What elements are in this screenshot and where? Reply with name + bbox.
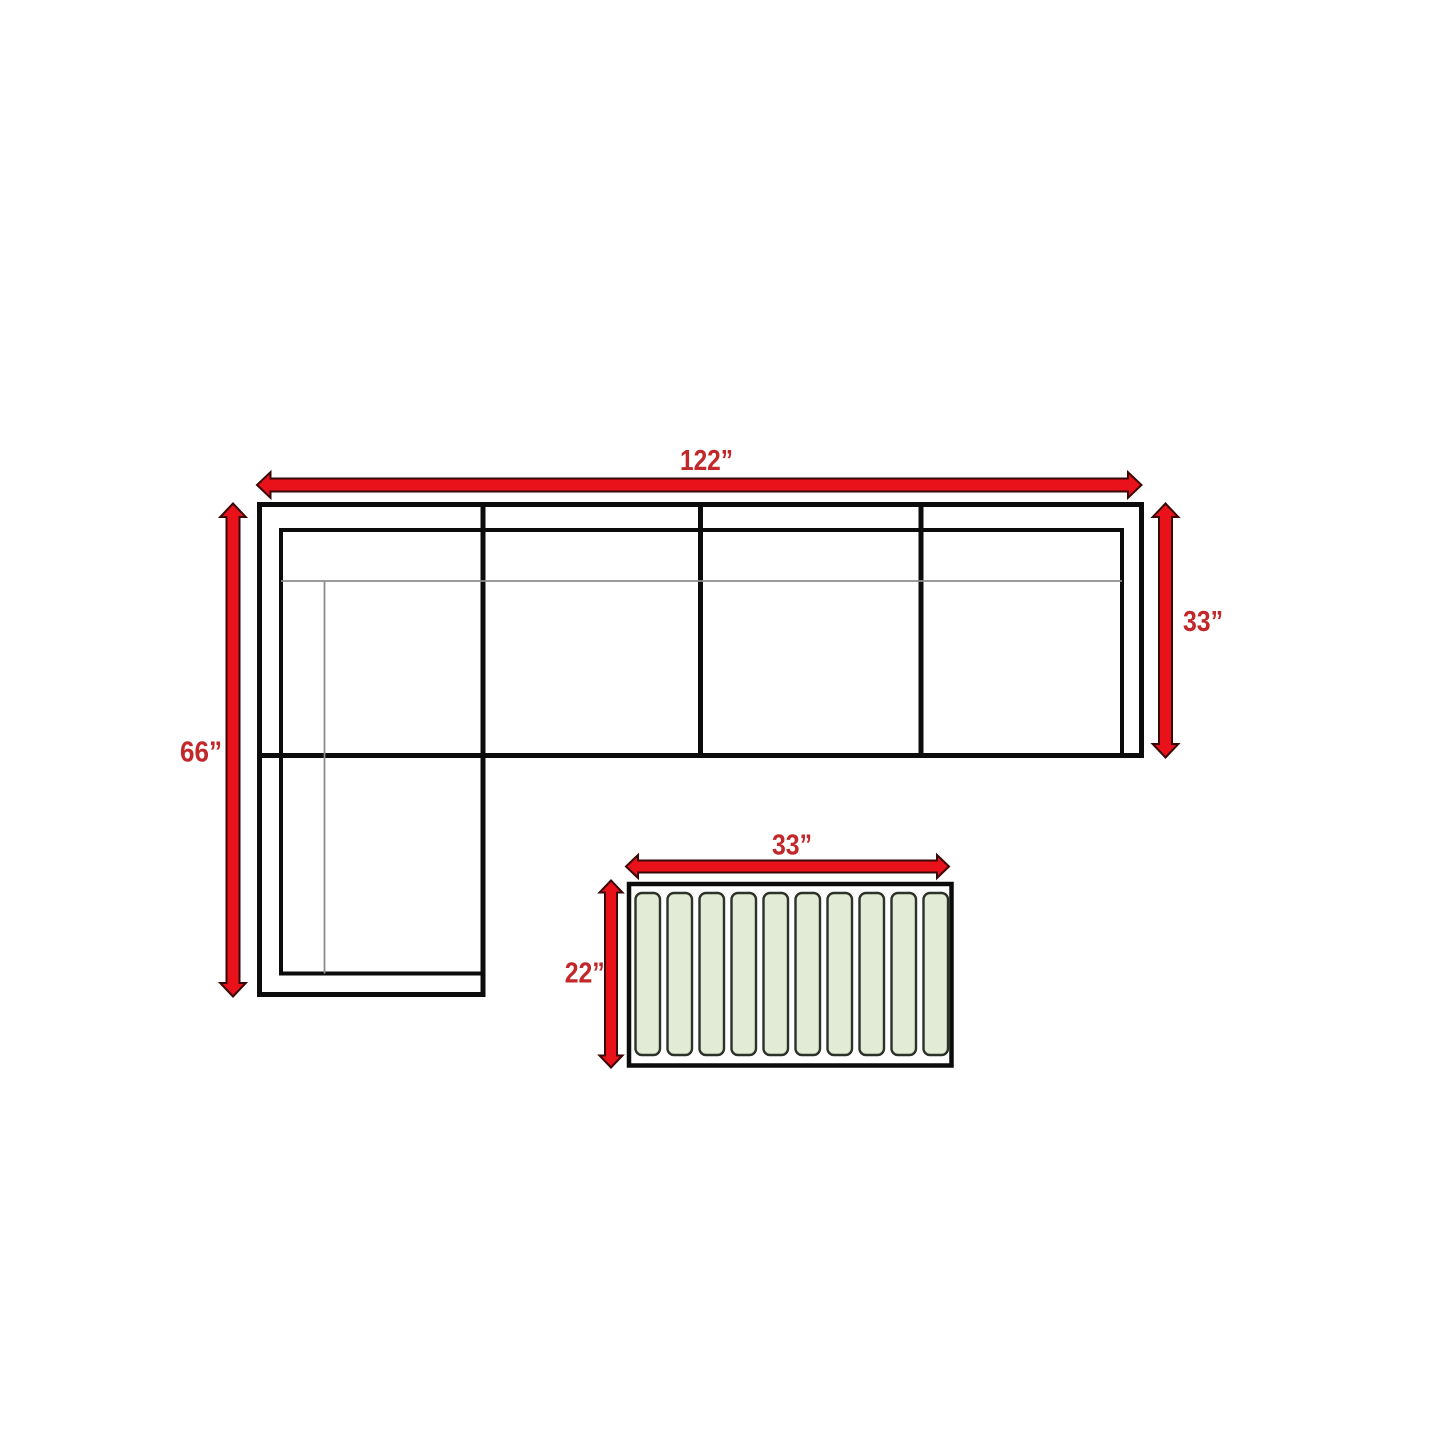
svg-text:22”: 22”: [565, 958, 605, 990]
svg-text:33”: 33”: [1183, 606, 1223, 638]
svg-text:66”: 66”: [180, 737, 222, 769]
svg-text:33”: 33”: [772, 830, 812, 862]
svg-text:122”: 122”: [680, 445, 733, 477]
